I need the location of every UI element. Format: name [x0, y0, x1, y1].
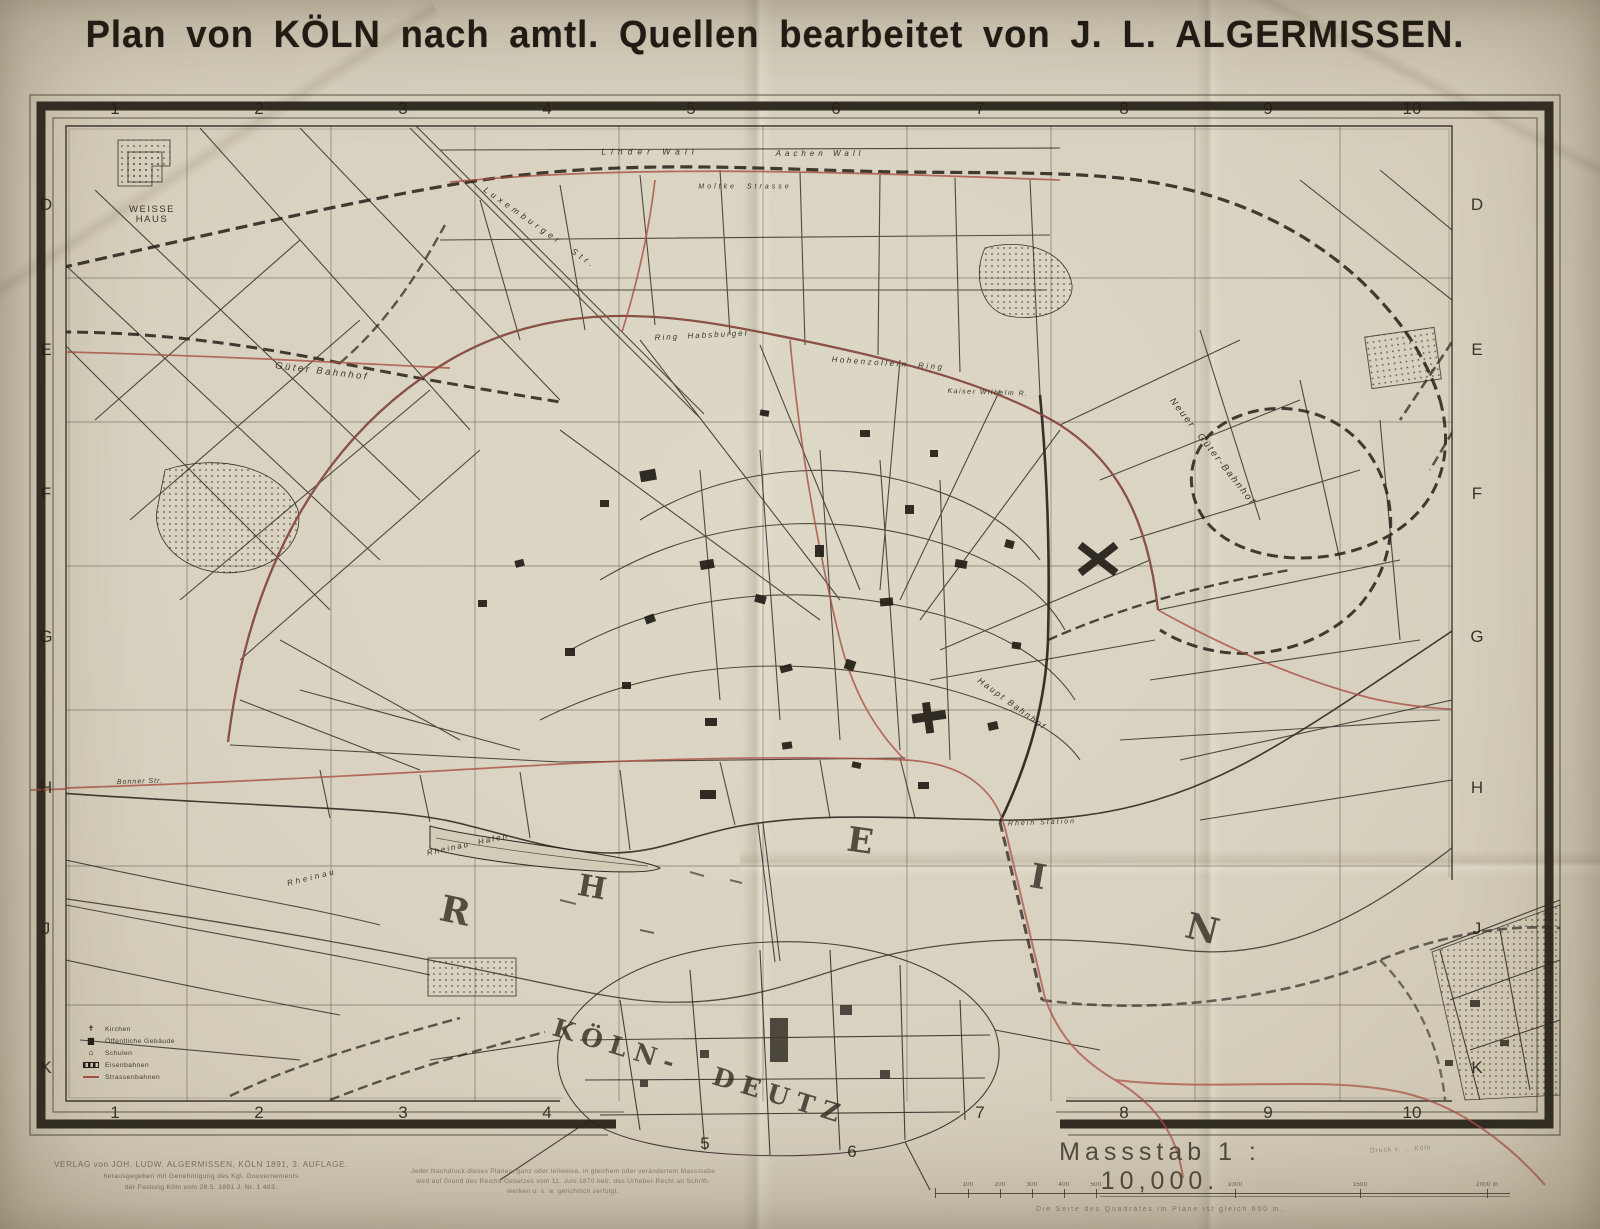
grid-column-2-top: 2	[254, 99, 263, 119]
map-label-hohenzollern-ring: Hohenzollern Ring	[831, 356, 944, 372]
grid-column-3-bottom: 3	[398, 1103, 407, 1123]
church-icon: ✝	[88, 1025, 95, 1033]
map-label-koeln-deutz: KÖLN- DEUTZ	[550, 1015, 851, 1130]
grid-row-E-right: E	[1471, 340, 1482, 360]
map-frame	[30, 95, 1560, 1135]
rhine-river	[60, 560, 1560, 1002]
grid-column-9-bottom: 9	[1263, 1103, 1272, 1123]
legend-item: ⌂Schulen	[82, 1048, 175, 1058]
map-sheet: Plan von KÖLN nach amtl. Quellen bearbei…	[0, 0, 1600, 1229]
grid-column-4-top: 4	[542, 99, 551, 119]
grid-column-8-top: 8	[1119, 99, 1128, 119]
legend-item: ▆Öffentliche Gebäude	[82, 1036, 175, 1046]
map-label-rhein-letter-e: E	[845, 823, 876, 862]
grid-column-4-bottom: 4	[542, 1103, 551, 1123]
map-label-rhein-station: Rhein Station	[1008, 818, 1076, 828]
map-label-neuer-gueter-bahnhof: Neuer Güter-Bahnhof	[1167, 396, 1257, 507]
grid-row-J-left: J	[42, 919, 51, 939]
grid-column-5-bottom: 5	[700, 1134, 709, 1154]
map-label-bonner-str: Bonner Str.	[117, 778, 163, 787]
grid-row-F-left: F	[41, 484, 51, 504]
grid-column-6-top: 6	[831, 99, 840, 119]
legend-item-label: Eisenbahnen	[105, 1062, 149, 1069]
scale-bar-tick-label: 300	[1027, 1182, 1038, 1188]
railway-lines	[60, 167, 1560, 1100]
copyright-line: werken u. s. w. gerichtlich verfolgt.	[348, 1188, 778, 1195]
legend-item: ✝Kirchen	[82, 1024, 175, 1034]
scale-title: Massstab 1 : 10,000.	[1010, 1138, 1310, 1196]
publisher-imprint: VERLAG von JOH. LUDW. ALGERMISSEN, KÖLN …	[36, 1160, 366, 1195]
scale-bar-tick	[1000, 1189, 1001, 1198]
public-building-icon: ▆	[88, 1037, 94, 1045]
grid-row-H-right: H	[1471, 778, 1483, 798]
grid-row-F-right: F	[1472, 484, 1482, 504]
grid-row-K-left: K	[40, 1058, 51, 1078]
grid-column-5-top: 5	[686, 99, 695, 119]
map-label-aachen-wall: Aachen Wall	[776, 150, 865, 158]
legend-item-label: Schulen	[105, 1050, 132, 1057]
grid-column-8-bottom: 8	[1119, 1103, 1128, 1123]
scale-bar-tick	[1235, 1189, 1236, 1198]
scale-bar-tick-label: 100	[963, 1182, 974, 1188]
school-icon: ⌂	[89, 1049, 94, 1057]
grid-column-3-top: 3	[398, 99, 407, 119]
grid-row-D-left: D	[40, 195, 52, 215]
map-label-rhein-letter-n: N	[1181, 908, 1222, 953]
legend-item: Eisenbahnen	[82, 1060, 175, 1070]
map-title: Plan von KÖLN nach amtl. Quellen bearbei…	[60, 14, 1490, 57]
map-label-haupt-bahnhof: Haupt Bahnhof	[976, 676, 1048, 732]
grid-column-10-bottom: 10	[1403, 1103, 1422, 1123]
grid-column-7-top: 7	[975, 99, 984, 119]
map-legend: ✝Kirchen▆Öffentliche Gebäude⌂SchulenEise…	[82, 1024, 175, 1084]
scale-bar-tick-label: 200	[995, 1182, 1006, 1188]
map-label-weisse-haus: WEISSE HAUS	[129, 205, 175, 225]
map-artwork	[0, 0, 1600, 1229]
street-network	[60, 124, 1452, 1060]
grid-row-D-right: D	[1471, 195, 1483, 215]
scale-bar-tick	[1032, 1189, 1033, 1198]
scale-bar-tick	[1096, 1189, 1097, 1198]
grid-column-1-bottom: 1	[110, 1103, 119, 1123]
copyright-line: Jeder Nachdruck dieses Planes, ganz oder…	[348, 1168, 778, 1175]
legend-item: Strassenbahnen	[82, 1072, 175, 1082]
scale-bar-tick-label: 500	[1091, 1182, 1102, 1188]
scale-bar-tick	[1487, 1189, 1488, 1198]
grid-column-6-bottom: 6	[847, 1142, 856, 1162]
scale-bar-tick-label: 400	[1059, 1182, 1070, 1188]
scale-bar-tick	[935, 1188, 936, 1198]
map-label-rhein-letter-h: H	[575, 870, 608, 906]
scale-bar-line	[935, 1193, 1510, 1194]
grid-column-9-top: 9	[1263, 99, 1272, 119]
publisher-line: VERLAG von JOH. LUDW. ALGERMISSEN, KÖLN …	[36, 1160, 366, 1169]
publisher-line: herausgegeben mit Genehmigung des Kgl. G…	[36, 1173, 366, 1180]
copyright-notice: Jeder Nachdruck dieses Planes, ganz oder…	[348, 1168, 778, 1198]
grid-row-H-left: H	[40, 778, 52, 798]
grid-row-K-right: K	[1471, 1058, 1482, 1078]
grid-column-2-bottom: 2	[254, 1103, 263, 1123]
map-grid-lines	[66, 126, 1452, 1101]
paper-crease	[1196, 0, 1222, 1229]
grid-row-G-right: G	[1470, 627, 1483, 647]
scale-bar-tick	[968, 1189, 969, 1198]
scale-bar-tick-label: 1000	[1228, 1182, 1243, 1188]
map-label-gueter-bahnhof: Güter Bahnhof	[275, 361, 370, 382]
map-label-habsburger-ring: Ring Habsburger	[654, 329, 749, 342]
legend-item-label: Öffentliche Gebäude	[105, 1038, 175, 1045]
scale-bar-tick-label: 1500	[1353, 1182, 1368, 1188]
scale-bar-line	[1100, 1196, 1510, 1197]
scale-bar-tick-label: 2000 m	[1476, 1182, 1498, 1188]
map-label-linder-wall: Linder Wall	[601, 148, 698, 157]
map-label-rhein-letter-i: I	[1027, 859, 1049, 897]
copyright-line: wird auf Grund des Reichs-Gesetzes vom 1…	[348, 1178, 778, 1185]
tram-line-icon	[83, 1076, 99, 1078]
park-areas	[118, 140, 1441, 996]
map-label-rheinau: Rheinau	[286, 868, 337, 888]
grid-column-7-bottom: 7	[975, 1103, 984, 1123]
map-label-rheinau-hafen: Rheinau Hafen	[426, 832, 510, 858]
scale-bar-tick	[1360, 1189, 1361, 1198]
legend-item-label: Strassenbahnen	[105, 1074, 160, 1081]
map-label-kaiser-wilhelm-ring: Kaiser Wilhelm R.	[947, 388, 1028, 398]
grid-column-10-top: 10	[1403, 99, 1422, 119]
scale-caption: Die Seite des Quadrates im Plane ist gle…	[960, 1206, 1360, 1213]
map-label-rhein-letter-r: R	[436, 890, 473, 933]
publisher-line: der Festung Köln vom 28.5. 1891 J. Nr. 1…	[36, 1184, 366, 1191]
grid-column-1-top: 1	[110, 99, 119, 119]
map-label-luxemburger-str: Luxemburger Str.	[482, 185, 598, 270]
scale-bar-tick	[1064, 1189, 1065, 1198]
legend-item-label: Kirchen	[105, 1026, 131, 1033]
map-label-moltke-strasse: Moltke Strasse	[698, 183, 791, 190]
tram-lines	[66, 171, 1560, 828]
grid-row-G-left: G	[39, 627, 52, 647]
deutz-and-spill-areas	[30, 789, 1560, 1190]
building-blocks	[478, 409, 1116, 799]
printer-note: Druck v. … Köln	[1370, 1144, 1432, 1154]
grid-row-J-right: J	[1473, 919, 1482, 939]
railway-line-icon	[83, 1062, 99, 1068]
grid-row-E-left: E	[40, 340, 51, 360]
